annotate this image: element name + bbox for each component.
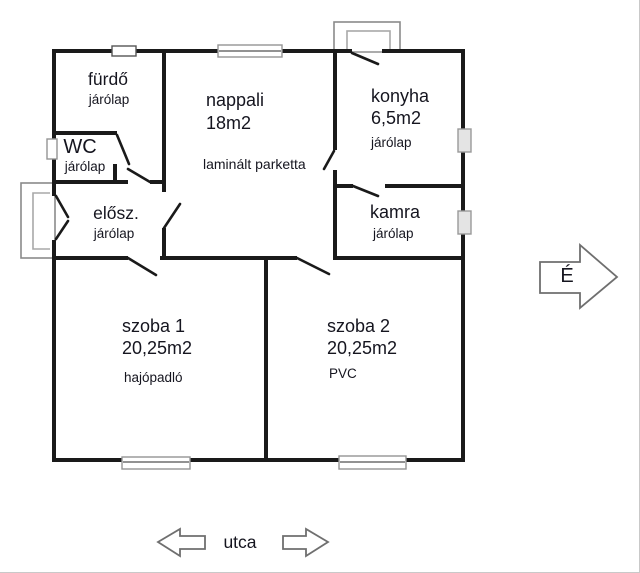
door-kitchen-back xyxy=(352,53,378,64)
door-room2 xyxy=(297,258,329,274)
entrance-door-slab xyxy=(33,193,50,249)
room-label-wc: WC xyxy=(58,137,102,158)
street-arrow-right-icon xyxy=(283,529,328,556)
wall-hall-bottom-left xyxy=(56,256,128,260)
window-pantry-right xyxy=(458,211,471,234)
north-label: É xyxy=(552,266,582,287)
street-arrow-left-icon xyxy=(158,529,205,556)
wall-living-pantry-lower xyxy=(333,170,337,260)
room-area-konyha: 6,5m2 xyxy=(371,109,421,128)
wall-left-upper xyxy=(52,49,56,196)
wall-pantry-top-left xyxy=(333,184,353,188)
wall-bath-bottom-stub xyxy=(150,180,166,184)
wall-wc-bottom xyxy=(52,180,128,184)
door-living-kitchen xyxy=(324,151,334,169)
door-wc xyxy=(117,135,129,164)
door-room1 xyxy=(128,258,156,275)
door-entrance-lower-leaf xyxy=(56,221,68,239)
window-bathroom-top xyxy=(112,46,136,56)
wall-living-kitchen-upper xyxy=(333,49,337,150)
room-area-szoba2: 20,25m2 xyxy=(327,339,397,358)
door-pantry xyxy=(353,186,378,196)
wall-top-left xyxy=(52,49,352,53)
wall-room-divider xyxy=(264,258,268,462)
wall-pantry-top-right xyxy=(385,184,465,188)
wall-bath-living-upper xyxy=(162,49,166,192)
room-label-szoba1: szoba 1 xyxy=(122,317,185,336)
wall-hall-living-lower xyxy=(162,228,166,260)
door-entrance-upper-leaf xyxy=(56,196,68,217)
room-floor-eloszoba: járólap xyxy=(72,227,156,241)
room-area-nappali: 18m2 xyxy=(206,114,251,133)
street-label: utca xyxy=(215,533,265,551)
room-floor-konyha: járólap xyxy=(371,136,412,150)
kitchen-porch-step xyxy=(347,31,390,52)
door-bathroom xyxy=(128,169,150,182)
room-floor-kamra: járólap xyxy=(373,227,414,241)
room-label-furdo: fürdő xyxy=(58,70,158,88)
wall-wc-top xyxy=(52,131,117,135)
window-wc-left xyxy=(47,139,57,159)
room-area-szoba1: 20,25m2 xyxy=(122,339,192,358)
wall-top-right xyxy=(382,49,465,53)
room-label-konyha: konyha xyxy=(371,87,429,106)
wall-right xyxy=(461,49,465,462)
room-floor-szoba2: PVC xyxy=(329,367,357,381)
wall-hall-bottom-right xyxy=(160,256,297,260)
room-label-szoba2: szoba 2 xyxy=(327,317,390,336)
room-floor-wc: járólap xyxy=(62,160,108,174)
room-label-eloszoba: elősz. xyxy=(74,204,158,222)
door-hall-living xyxy=(164,204,180,228)
window-room1-bottom xyxy=(122,457,190,469)
room-floor-szoba1: hajópadló xyxy=(124,371,183,385)
room-floor-furdo: járólap xyxy=(59,93,159,107)
entrance-porch-outline xyxy=(21,183,55,258)
room-label-nappali: nappali xyxy=(206,91,264,110)
wall-pantry-bottom xyxy=(333,256,465,260)
room-label-kamra: kamra xyxy=(370,203,420,222)
floor-plan: fürdő járólap WC járólap elősz. járólap … xyxy=(0,0,640,573)
wall-left-lower xyxy=(52,240,56,462)
room-floor-nappali: laminált parketta xyxy=(203,157,306,172)
window-kitchen-right xyxy=(458,129,471,152)
